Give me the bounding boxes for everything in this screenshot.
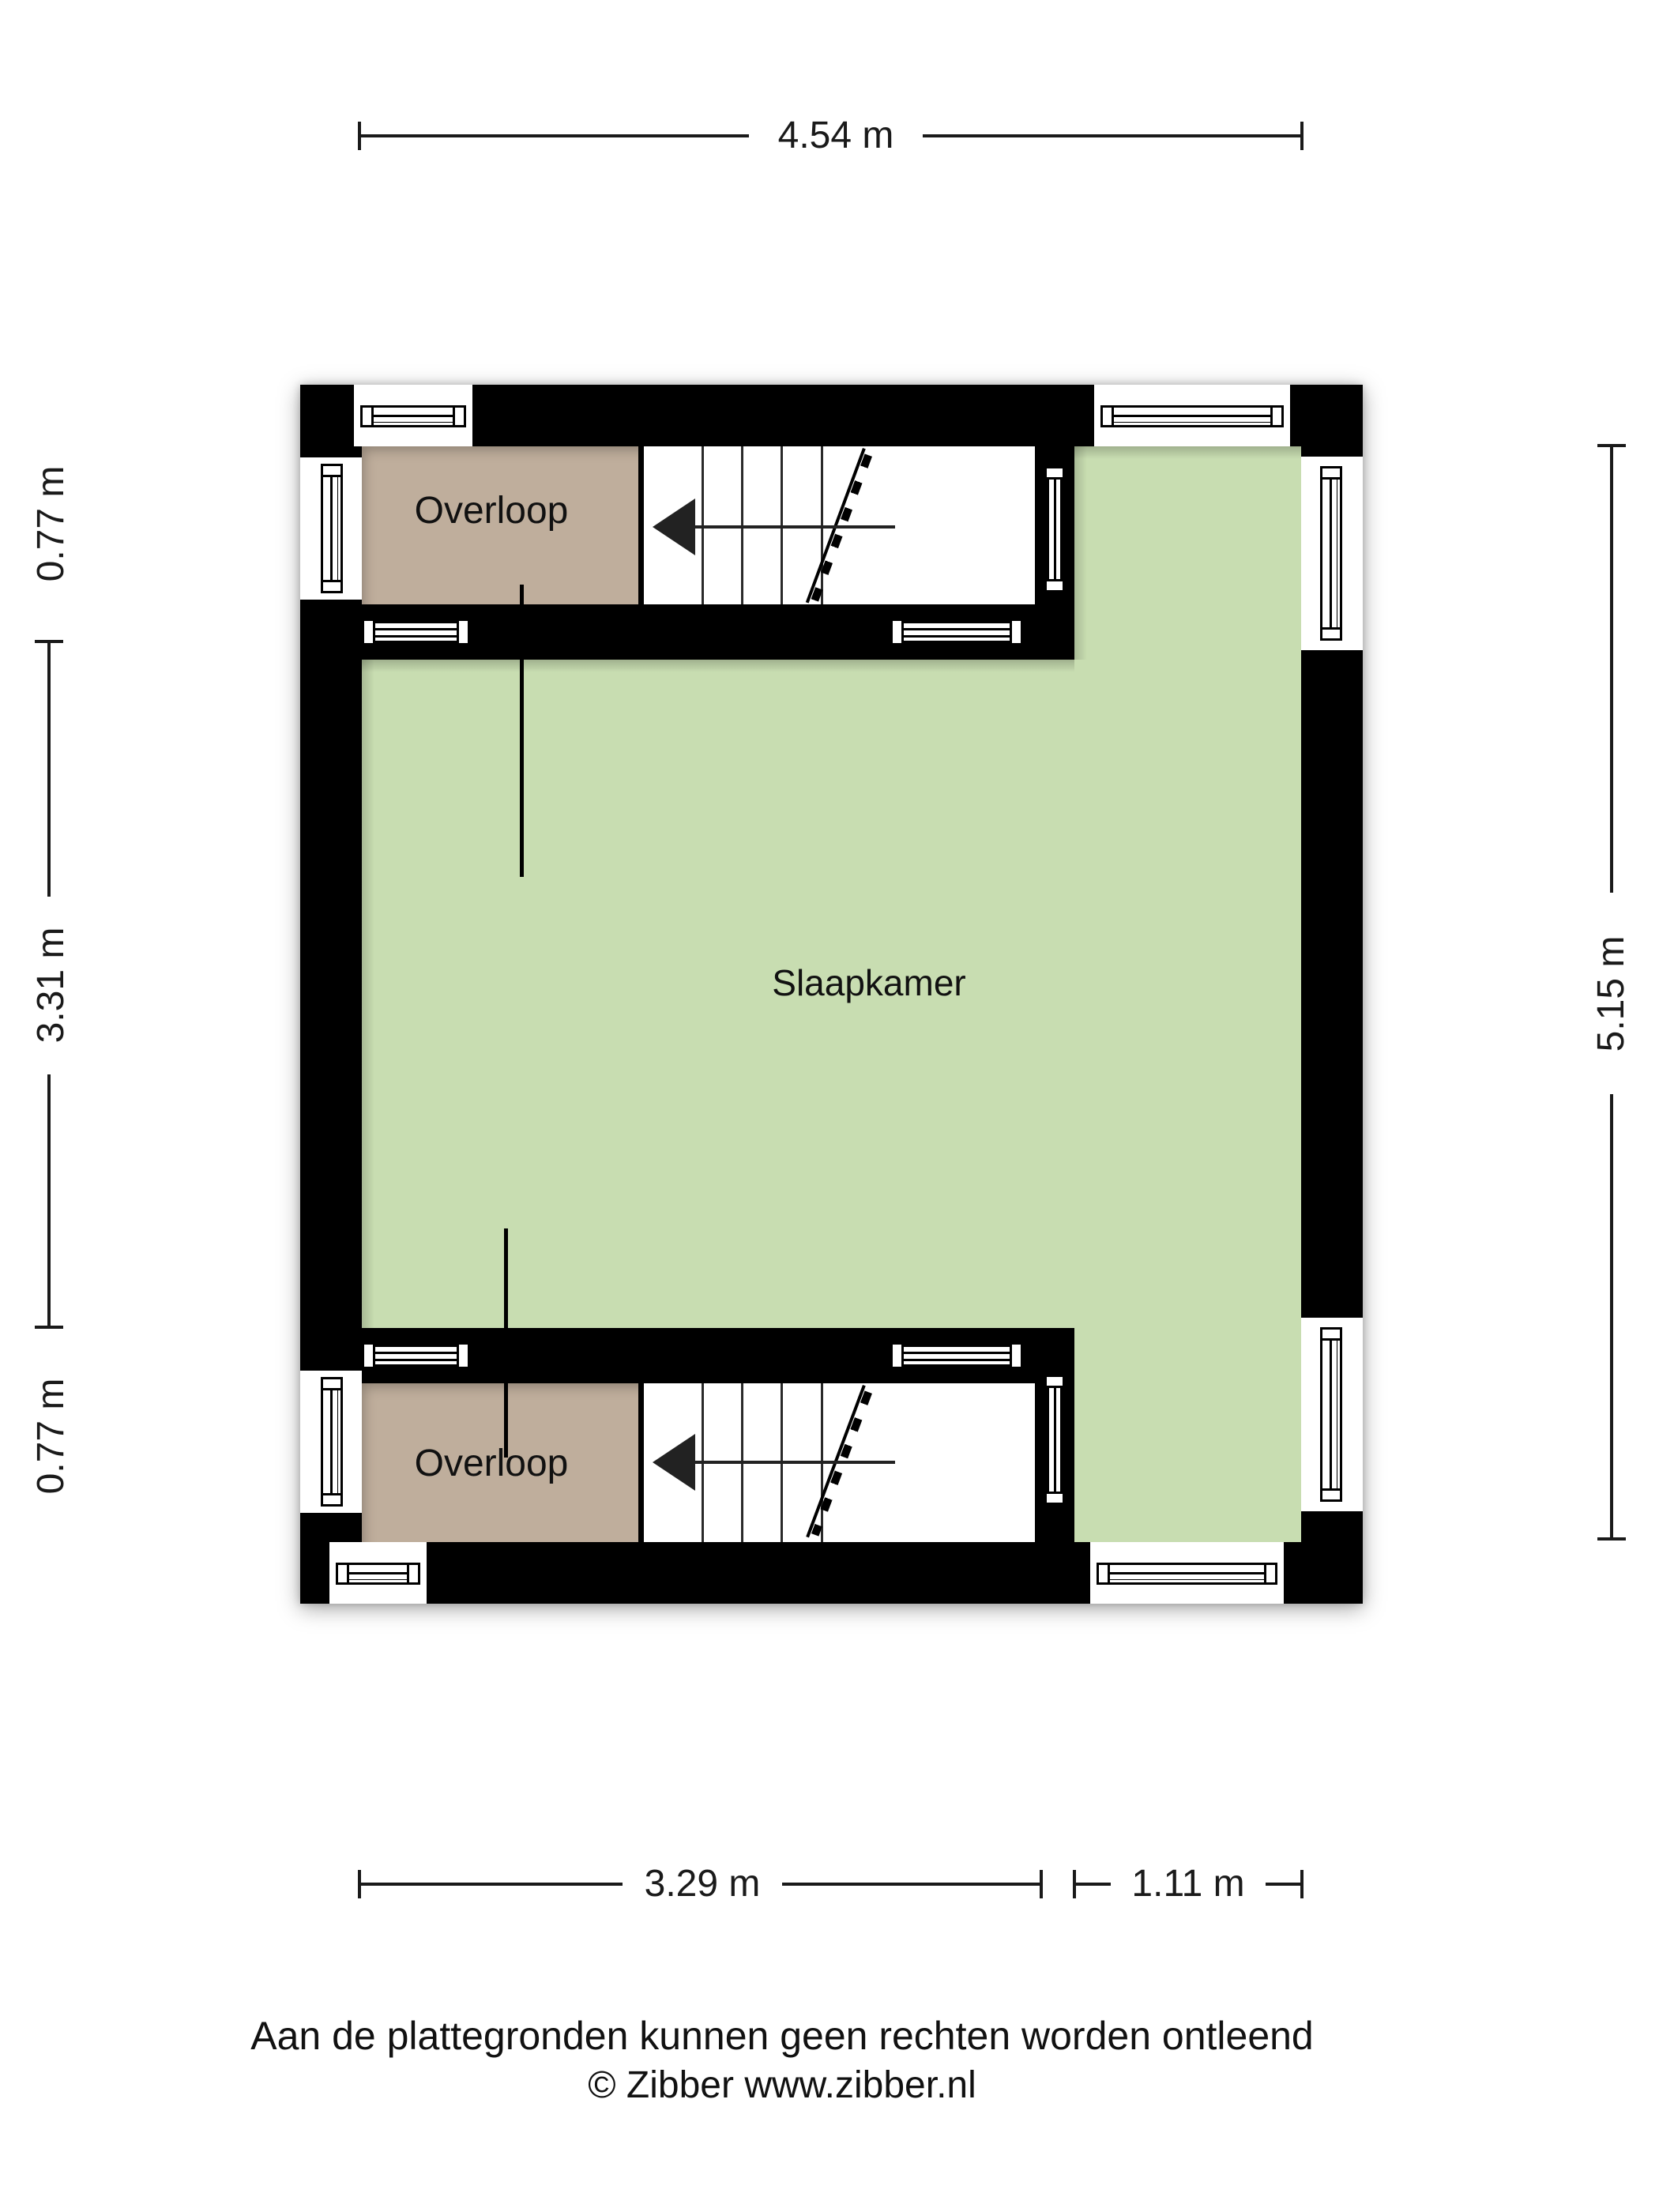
- floorplan-page: 4.54 m 0.77 m 3.31 m 0.77 m 5.15 m 3.29 …: [0, 0, 1659, 2212]
- dimension-label-left-top: 0.77 m: [29, 429, 73, 619]
- stair-arrow-head: [653, 498, 695, 555]
- window-bottom-left: [336, 1563, 420, 1585]
- dimension-tick: [35, 1326, 63, 1329]
- dimension-tick: [1300, 1870, 1303, 1898]
- dimension-line: [47, 640, 51, 897]
- window-interior: [362, 619, 470, 645]
- window-bottom-right: [1097, 1563, 1277, 1585]
- dimension-line: [358, 1883, 623, 1886]
- stair-direction-arrow: [691, 1461, 895, 1464]
- dimension-line: [782, 1883, 1043, 1886]
- dimension-label-left-middle: 3.31 m: [29, 890, 73, 1080]
- window-interior: [890, 1342, 1023, 1369]
- window-interior: [362, 1342, 470, 1369]
- wall-stair-divider: [638, 1383, 644, 1542]
- room-label-slaapkamer: Slaapkamer: [750, 961, 987, 1004]
- window-top-left: [360, 405, 466, 427]
- wall-shadow: [362, 660, 374, 1328]
- window-interior: [1044, 466, 1065, 592]
- dimension-tick: [1040, 1870, 1043, 1898]
- window-left-top: [321, 464, 343, 593]
- room-label-overloop-top: Overloop: [381, 489, 602, 532]
- footer-disclaimer: Aan de plattegronden kunnen geen rechten…: [229, 2013, 1335, 2059]
- dimension-line: [1266, 1883, 1303, 1886]
- window-right-bottom: [1320, 1327, 1342, 1502]
- wall-stair-divider: [638, 446, 644, 604]
- dimension-line: [1610, 1094, 1613, 1540]
- stair-arrow-head: [653, 1434, 695, 1491]
- window-right-top: [1320, 466, 1342, 641]
- wall-shadow: [1074, 446, 1301, 459]
- dimension-label-right: 5.15 m: [1589, 899, 1634, 1089]
- door-marker-bottom: [504, 1228, 508, 1458]
- stair-direction-arrow: [691, 525, 895, 529]
- window-left-bottom: [321, 1377, 343, 1507]
- dimension-tick: [1300, 122, 1303, 150]
- door-marker-top: [520, 585, 524, 877]
- window-interior: [890, 619, 1023, 645]
- dimension-line: [47, 1074, 51, 1329]
- dimension-line: [358, 134, 749, 137]
- dimension-label-top: 4.54 m: [749, 114, 923, 158]
- wall-shadow: [362, 660, 1074, 672]
- floorplan: Overloop Slaapkamer Overloop: [300, 385, 1363, 1604]
- dimension-label-bottom-left: 3.29 m: [623, 1862, 782, 1906]
- dimension-line: [1073, 1883, 1111, 1886]
- dimension-label-left-bottom: 0.77 m: [29, 1341, 73, 1531]
- wall-shadow: [1074, 446, 1087, 660]
- room-label-overloop-bottom: Overloop: [381, 1442, 602, 1485]
- window-interior: [1044, 1375, 1065, 1505]
- footer-credit: © Zibber www.zibber.nl: [229, 2063, 1335, 2107]
- dimension-line: [923, 134, 1303, 137]
- dimension-label-bottom-right: 1.11 m: [1108, 1862, 1268, 1906]
- window-top-right: [1100, 405, 1284, 427]
- dimension-tick: [1597, 1537, 1626, 1540]
- dimension-line: [1610, 444, 1613, 893]
